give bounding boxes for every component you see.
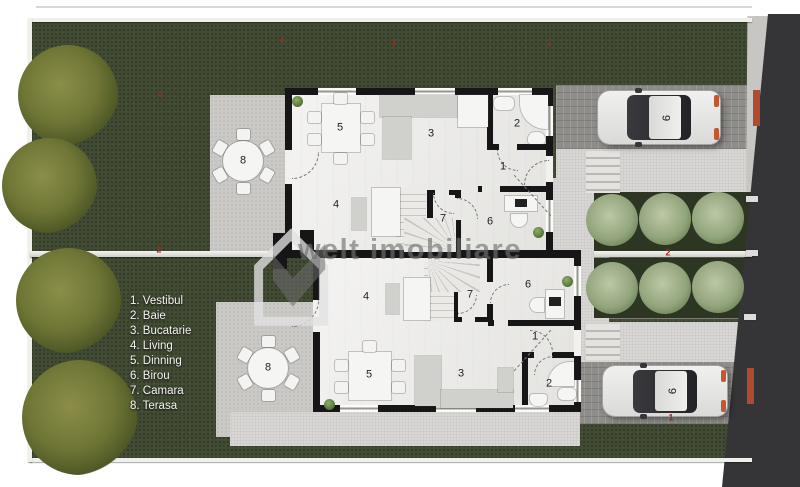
- room-label-baie-b: 2: [546, 379, 552, 390]
- tv-stand: [386, 284, 399, 314]
- chair: [237, 129, 250, 140]
- legend-item: 1. Vestibul: [130, 294, 250, 309]
- chair: [262, 336, 275, 347]
- car-top: 9: [598, 91, 720, 144]
- bush: [639, 262, 691, 314]
- room-label-vestibul-b: 1: [532, 332, 538, 343]
- office-chair: [530, 298, 544, 312]
- divider-fence-right: [594, 251, 752, 257]
- room-label-birou-a: 6: [487, 217, 493, 228]
- fridge: [458, 95, 488, 127]
- room-label-vestibul-a: 1: [500, 162, 506, 173]
- room-label-living-b: 4: [363, 292, 369, 303]
- room-label-camara-a: 7: [440, 214, 446, 225]
- chair: [392, 382, 405, 393]
- window: [415, 88, 455, 95]
- entry-steps-bottom: [586, 324, 620, 360]
- side-mirror: [640, 363, 647, 368]
- taillight: [714, 128, 719, 140]
- wall: [478, 186, 482, 192]
- plant: [562, 276, 573, 287]
- chair: [392, 360, 405, 371]
- gate-post: [753, 90, 760, 126]
- room-label-dinning-a: 5: [337, 123, 343, 134]
- chair: [363, 341, 376, 352]
- tree: [22, 360, 137, 475]
- laptop: [515, 199, 527, 207]
- chair: [334, 153, 347, 164]
- toilet: [528, 132, 545, 144]
- bush: [692, 192, 744, 244]
- fence-top: [30, 18, 752, 22]
- legend-item: 5. Dinning: [130, 354, 250, 369]
- bush: [586, 262, 638, 314]
- legend-item: 3. Bucatarie: [130, 324, 250, 339]
- side-mirror: [640, 414, 647, 419]
- chair: [361, 134, 374, 145]
- laptop: [549, 297, 561, 306]
- dimension-mark: 1: [546, 39, 551, 48]
- dimension-mark: 4: [157, 91, 162, 100]
- wall: [522, 358, 528, 412]
- side-mirror: [635, 88, 642, 93]
- wall: [508, 320, 581, 326]
- kitchen-cabinet: [383, 117, 411, 159]
- chair: [262, 390, 275, 401]
- fence-bottom: [30, 458, 752, 462]
- legend-item: 4. Living: [130, 339, 250, 354]
- kitchen-counter: [498, 368, 513, 392]
- room-label-dinning-b: 5: [366, 370, 372, 381]
- room-label-birou-b: 6: [525, 280, 531, 291]
- chair: [308, 134, 321, 145]
- fence-cap: [746, 250, 758, 256]
- fence-cap: [744, 314, 756, 320]
- chair: [335, 382, 348, 393]
- tree: [2, 138, 97, 233]
- car-bottom: 9: [603, 366, 727, 416]
- site-plan: 8 8: [0, 0, 800, 487]
- room-legend: 1. Vestibul 2. Baie 3. Bucatarie 4. Livi…: [130, 294, 250, 414]
- dimension-mark: 2: [665, 249, 670, 258]
- entry-steps-top: [586, 151, 620, 193]
- chair: [308, 112, 321, 123]
- wall: [517, 144, 553, 150]
- parking-label: 9: [666, 388, 677, 394]
- wall: [475, 317, 489, 322]
- legend-item: 7. Camara: [130, 384, 250, 399]
- tv-stand: [352, 198, 366, 230]
- tree: [16, 248, 121, 353]
- sink: [494, 97, 514, 110]
- dimension-mark: 1: [668, 414, 673, 423]
- parking-label: 9: [660, 114, 671, 120]
- tree: [18, 45, 118, 145]
- room-label-baie-a: 2: [514, 119, 520, 130]
- fence-cap: [746, 196, 758, 202]
- bush: [586, 194, 638, 246]
- taillight: [714, 95, 719, 107]
- sink: [558, 388, 576, 400]
- sofa: [372, 188, 400, 236]
- terrace-door-a: [285, 150, 292, 184]
- dimension-mark: 3: [391, 39, 396, 48]
- entry-door-b: [574, 330, 581, 356]
- chair: [237, 183, 250, 194]
- plant: [324, 399, 335, 410]
- kitchen-cabinet: [415, 356, 441, 406]
- window: [515, 405, 549, 412]
- gate-post: [747, 368, 754, 404]
- window: [340, 405, 378, 412]
- legend-item: 2. Baie: [130, 309, 250, 324]
- bush: [639, 193, 691, 245]
- side-mirror: [635, 142, 642, 147]
- chair: [361, 112, 374, 123]
- plant: [292, 96, 303, 107]
- legend-item: 8. Terasa: [130, 399, 250, 414]
- chair: [335, 360, 348, 371]
- toilet: [530, 394, 547, 406]
- chair: [334, 93, 347, 104]
- window: [574, 266, 581, 296]
- room-label-terasa-b: 8: [265, 363, 271, 374]
- bush: [692, 261, 744, 313]
- window: [498, 88, 532, 95]
- sofa: [404, 278, 430, 320]
- plant: [533, 227, 544, 238]
- rear-apron: [230, 412, 580, 446]
- room-label-camara-b: 7: [467, 290, 473, 301]
- kitchen-counter: [441, 390, 513, 408]
- plot-boundary-line: [36, 6, 752, 8]
- room-label-bucatarie-a: 3: [428, 129, 434, 140]
- taillight: [721, 370, 726, 382]
- dimension-mark: 2: [156, 246, 161, 255]
- taillight: [721, 400, 726, 412]
- room-label-living-a: 4: [333, 200, 339, 211]
- legend-item: 6. Birou: [130, 369, 250, 384]
- room-label-bucatarie-b: 3: [458, 369, 464, 380]
- room-label-terasa-a: 8: [240, 156, 246, 167]
- dimension-mark: 4: [279, 37, 284, 46]
- watermark-text: welt imobiliare: [298, 236, 522, 265]
